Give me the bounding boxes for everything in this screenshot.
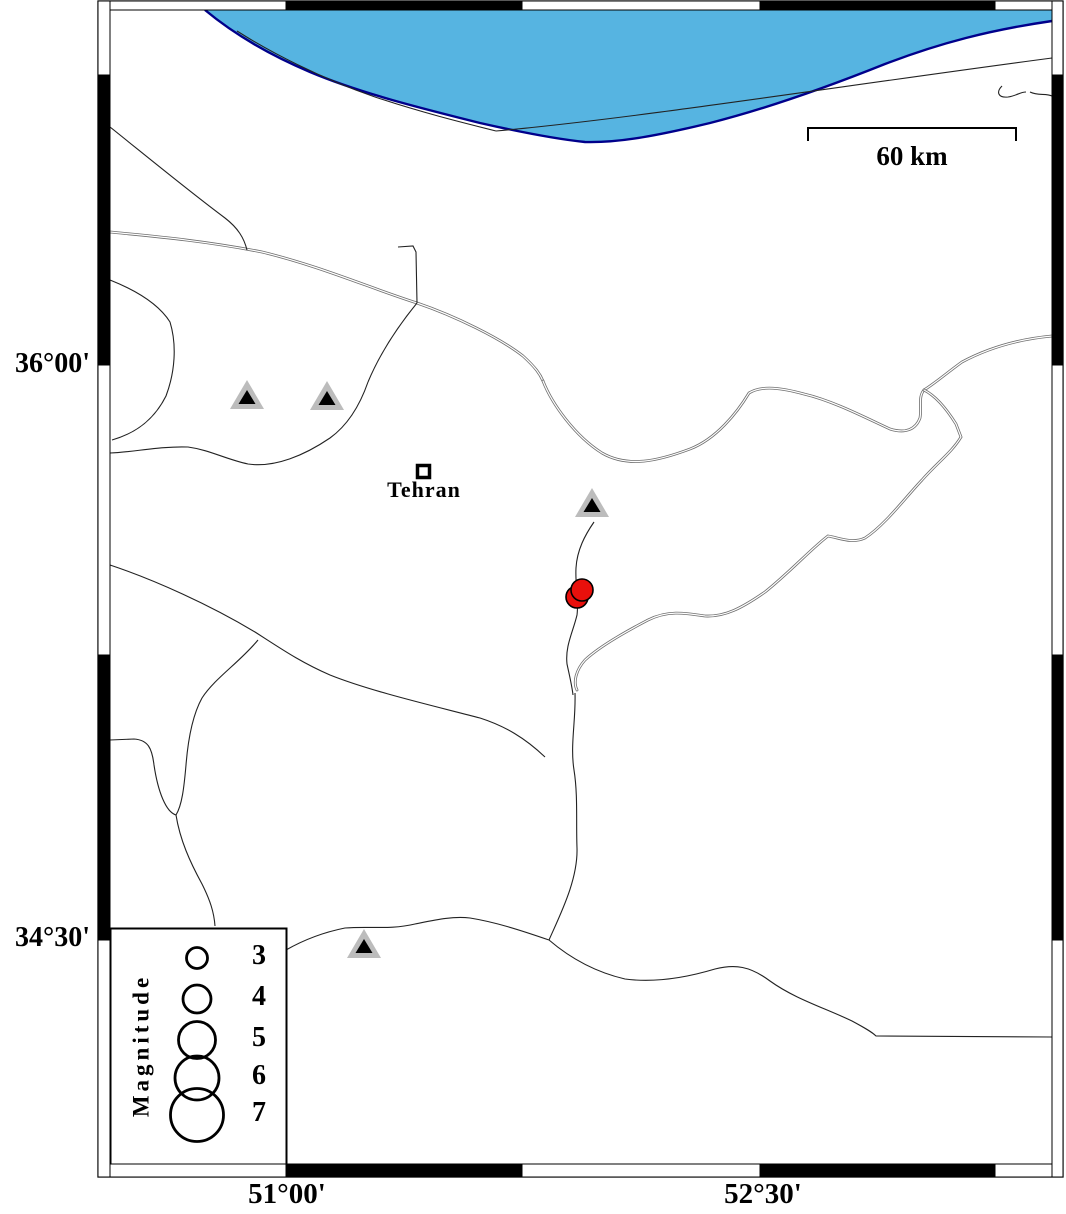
frame-segment-left — [98, 655, 110, 940]
frame-segment-right — [1052, 940, 1063, 1177]
boundary-line — [368, 303, 417, 382]
legend-title: Magnitude — [130, 926, 153, 1166]
frame-segment-right — [1052, 365, 1063, 655]
boundary-double-outer — [543, 381, 924, 462]
boundary-line — [549, 940, 1052, 1037]
scalebar-label: 60 km — [832, 143, 992, 170]
scalebar-bracket — [808, 128, 1016, 141]
frame-segment-bottom — [522, 1164, 760, 1177]
symbols-layer — [230, 380, 609, 958]
city-label-tehran: Tehran — [344, 479, 504, 501]
boundary-lines-layer — [110, 31, 1052, 1037]
legend-mag-7: 7 — [239, 1099, 279, 1127]
boundary-line — [567, 522, 594, 695]
scalebar-layer — [808, 128, 1016, 141]
frame-segment-bottom — [760, 1164, 995, 1177]
frame-segment-bottom — [286, 1164, 522, 1177]
boundary-line — [999, 86, 1026, 97]
lat-label-36-00: 36°00' — [0, 350, 90, 378]
earthquake-epicenter-icon — [571, 579, 593, 601]
legend-mag-5: 5 — [239, 1024, 279, 1052]
boundary-line — [286, 917, 549, 950]
sea-polygon — [205, 10, 1052, 142]
legend-mag-6: 6 — [239, 1062, 279, 1090]
boundary-double-outer — [110, 232, 543, 381]
frame-segment-right — [1052, 75, 1063, 365]
map-figure: 36°00' 34°30' 51°00' 52°30' Tehran 60 km… — [0, 0, 1066, 1214]
frame-segment-top — [286, 1, 522, 10]
frame-segment-top — [98, 1, 286, 10]
frame-segment-left — [98, 1, 110, 75]
legend-mag-4: 4 — [239, 983, 279, 1011]
boundary-line — [398, 246, 417, 303]
boundary-line — [549, 693, 577, 940]
frame-segment-left — [98, 75, 110, 365]
lat-label-34-30: 34°30' — [0, 924, 90, 952]
lon-label-51-00: 51°00' — [207, 1180, 367, 1209]
boundary-double-inner — [575, 390, 961, 690]
frame-segment-top — [760, 1, 995, 10]
city-marker-icon — [418, 466, 430, 478]
boundary-double-outer — [924, 336, 1052, 390]
frame-segment-right — [1052, 1, 1063, 75]
boundary-line — [110, 565, 545, 757]
boundary-line — [110, 127, 247, 250]
boundary-double-inner — [543, 381, 924, 462]
boundary-line — [110, 280, 174, 440]
boundary-line — [110, 640, 258, 815]
map-canvas — [0, 0, 1066, 1214]
boundary-line — [1030, 92, 1052, 96]
boundary-line — [176, 815, 215, 926]
legend-mag-3: 3 — [239, 942, 279, 970]
frame-segment-bottom — [98, 1164, 286, 1177]
sea-layer — [205, 10, 1052, 142]
frame-segment-left — [98, 365, 110, 655]
lon-label-52-30: 52°30' — [683, 1180, 843, 1209]
frame-segment-top — [522, 1, 760, 10]
boundary-double-inner — [110, 232, 543, 381]
frame-segment-left — [98, 940, 110, 1177]
frame-segment-right — [1052, 655, 1063, 940]
boundary-double-inner — [924, 336, 1052, 390]
boundary-double-outer — [575, 390, 961, 690]
